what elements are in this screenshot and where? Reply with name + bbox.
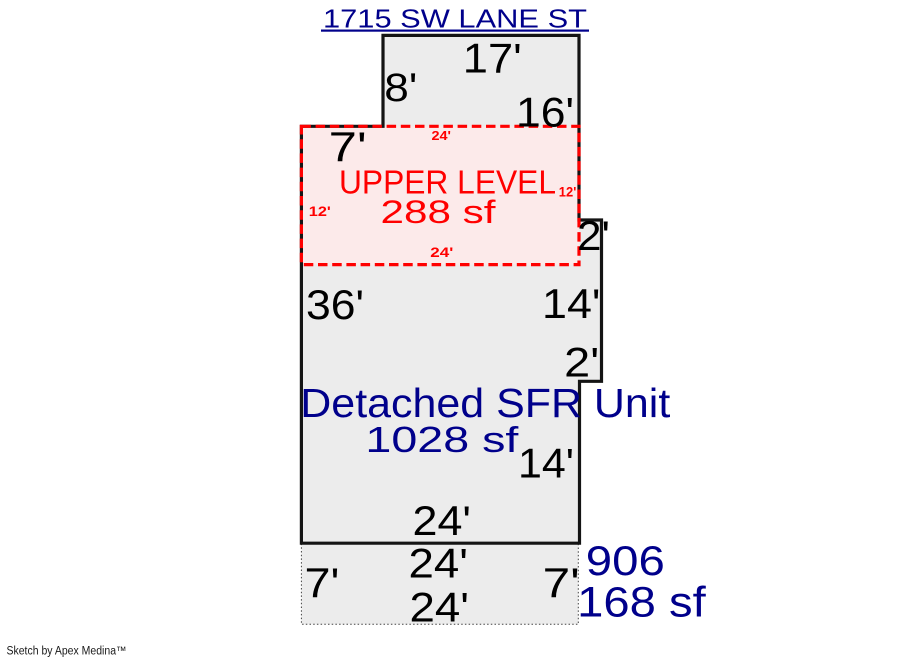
svg-text:1715 SW LANE ST: 1715 SW LANE ST xyxy=(323,4,587,34)
svg-text:24': 24' xyxy=(430,244,453,260)
svg-text:7': 7' xyxy=(305,559,340,606)
svg-text:8': 8' xyxy=(384,66,417,110)
svg-text:2': 2' xyxy=(577,212,610,259)
svg-text:2': 2' xyxy=(564,339,599,386)
svg-text:7': 7' xyxy=(543,559,580,606)
svg-text:24': 24' xyxy=(413,497,472,544)
svg-text:168 sf: 168 sf xyxy=(577,579,707,627)
svg-text:288 sf: 288 sf xyxy=(381,194,496,230)
svg-text:14': 14' xyxy=(542,280,601,327)
svg-text:36': 36' xyxy=(306,281,364,328)
svg-text:24': 24' xyxy=(410,584,470,631)
svg-text:24': 24' xyxy=(409,540,469,587)
svg-text:906: 906 xyxy=(586,537,665,584)
svg-text:12': 12' xyxy=(559,185,577,200)
svg-text:17': 17' xyxy=(463,34,522,81)
svg-text:12': 12' xyxy=(309,203,331,219)
svg-text:24': 24' xyxy=(432,128,452,143)
svg-text:1028 sf: 1028 sf xyxy=(365,419,519,460)
svg-text:14': 14' xyxy=(518,440,574,487)
svg-text:Sketch by Apex Medina™: Sketch by Apex Medina™ xyxy=(7,646,127,658)
svg-text:16': 16' xyxy=(516,89,574,136)
